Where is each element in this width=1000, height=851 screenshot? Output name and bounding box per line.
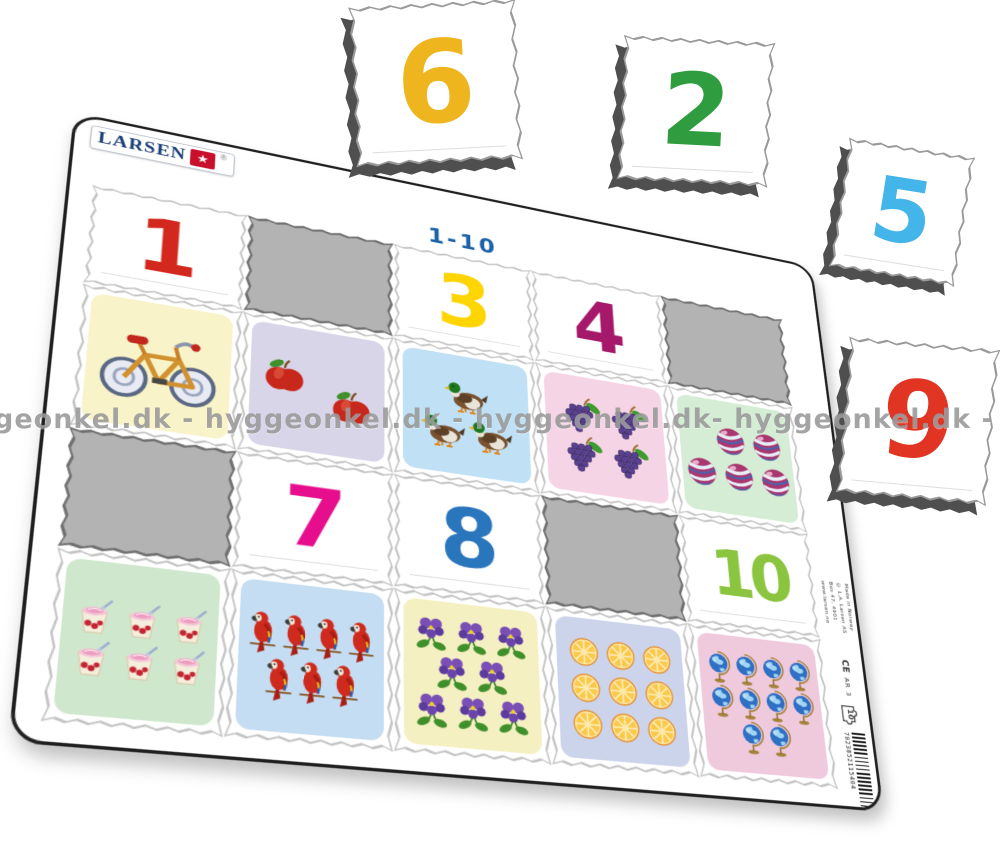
piece-count: 10 <box>839 702 863 727</box>
orange-icon <box>602 636 639 674</box>
orange-icon <box>641 676 678 714</box>
loose-piece-6[interactable]: 6 <box>348 0 524 168</box>
violet-icon <box>492 622 530 662</box>
grapes-icon <box>560 431 607 477</box>
violet-icon <box>433 653 472 694</box>
missing-piece-slot[interactable] <box>541 494 688 622</box>
orange-icon <box>643 711 680 750</box>
loose-piece-9[interactable]: 9 <box>835 336 1000 507</box>
ball-icon <box>711 421 749 460</box>
parrot-icon <box>329 661 360 709</box>
yogurt-icon <box>114 640 162 685</box>
piece-number: 5 <box>828 137 975 287</box>
piece-number: 8 <box>394 473 546 605</box>
orange-icon <box>565 632 602 670</box>
missing-piece-slot[interactable] <box>57 426 236 567</box>
picture-piece-globe[interactable] <box>687 622 838 789</box>
picture-piece-duck[interactable] <box>394 337 541 495</box>
piece-number: 9 <box>835 336 1000 507</box>
picture-tile <box>544 370 670 505</box>
picture-tile <box>235 578 384 741</box>
loose-piece-2[interactable]: 2 <box>616 34 775 188</box>
picture-piece-grapes[interactable] <box>535 361 679 514</box>
globe-icon <box>758 656 786 691</box>
globe-icon <box>785 659 813 694</box>
piece-number: 2 <box>616 34 775 188</box>
violet-icon <box>413 689 453 731</box>
picture-piece-yogurt[interactable] <box>40 546 231 737</box>
orange-icon <box>606 708 643 747</box>
piece-number: 6 <box>348 0 524 168</box>
orange-icon <box>567 668 604 707</box>
picture-tile <box>555 615 691 768</box>
picture-piece-orange[interactable] <box>545 605 700 778</box>
orange-icon <box>604 672 641 711</box>
parrot-icon <box>296 658 328 706</box>
grapes-icon <box>605 400 651 445</box>
picture-tile <box>247 320 384 463</box>
globe-icon <box>732 653 760 688</box>
larsen-logo-text: LARSEN <box>97 129 187 165</box>
picture-piece-parrot[interactable] <box>224 567 394 752</box>
picture-tile <box>403 346 532 485</box>
globe-icon <box>708 683 737 719</box>
yogurt-icon <box>162 645 209 690</box>
picture-tile <box>403 597 542 755</box>
grapes-icon <box>607 438 654 483</box>
violet-icon <box>494 697 533 738</box>
registered-mark: ® <box>219 154 228 163</box>
puzzle-piece-count-icon: 10 <box>839 702 863 727</box>
ball-icon <box>720 456 759 496</box>
apple-icon <box>260 351 308 398</box>
picture-piece-ball[interactable] <box>668 384 808 533</box>
loose-piece-5[interactable]: 5 <box>828 137 975 287</box>
duck-icon <box>468 416 514 459</box>
piece-number: 10 <box>678 514 820 638</box>
globe-icon <box>705 650 733 685</box>
violet-icon <box>454 693 493 734</box>
puzzle-board: LARSEN ★ ® 1-10 1347810 Made in Norway ©… <box>8 112 884 812</box>
orange-icon <box>569 704 607 743</box>
yogurt-icon <box>69 593 118 638</box>
number-piece-8[interactable]: 8 <box>394 473 546 605</box>
ce-mark: CE <box>839 659 850 673</box>
violet-icon <box>473 657 512 698</box>
made-in-credits: Made in Norway © L.A. Larsen AS Box 47, … <box>819 580 859 656</box>
globe-icon <box>765 723 794 759</box>
picture-tile <box>697 632 830 780</box>
star-icon: ★ <box>190 149 216 170</box>
picture-piece-bicycle[interactable] <box>69 282 243 450</box>
yogurt-icon <box>165 604 211 648</box>
ball-icon <box>683 450 722 490</box>
duck-icon <box>443 376 489 418</box>
globe-icon <box>735 686 764 722</box>
globe-icon <box>738 720 767 756</box>
picture-piece-apple[interactable] <box>237 310 394 472</box>
parrot-icon <box>346 618 376 665</box>
yogurt-icon <box>65 635 115 681</box>
board-grid: 1347810 <box>40 184 838 789</box>
picture-tile <box>676 393 799 524</box>
ball-icon <box>757 462 795 501</box>
violet-icon <box>453 618 492 658</box>
number-piece-10[interactable]: 10 <box>678 514 820 638</box>
larsen-logo: LARSEN ★ ® <box>89 125 235 177</box>
globe-icon <box>789 692 817 727</box>
picture-tile <box>53 557 221 726</box>
apple-icon <box>328 384 374 431</box>
parrot-icon <box>280 611 312 658</box>
yogurt-icon <box>117 598 165 643</box>
picture-piece-violet[interactable] <box>394 587 553 765</box>
picture-tile <box>81 292 234 440</box>
parrot-icon <box>262 655 295 703</box>
product-code: AR 3 <box>843 677 852 697</box>
parrot-icon <box>313 615 344 662</box>
ball-icon <box>748 427 786 466</box>
orange-icon <box>638 641 674 679</box>
duck-icon <box>420 408 467 451</box>
bicycle-icon <box>91 317 225 416</box>
number-piece-7[interactable]: 7 <box>232 450 394 587</box>
product-photo: LARSEN ★ ® 1-10 1347810 Made in Norway ©… <box>0 0 1000 851</box>
violet-icon <box>412 613 451 654</box>
barcode: 7023852115404 <box>842 732 878 812</box>
piece-number: 7 <box>232 450 394 587</box>
globe-icon <box>762 689 790 724</box>
parrot-icon <box>247 607 280 655</box>
grapes-icon <box>558 392 605 437</box>
